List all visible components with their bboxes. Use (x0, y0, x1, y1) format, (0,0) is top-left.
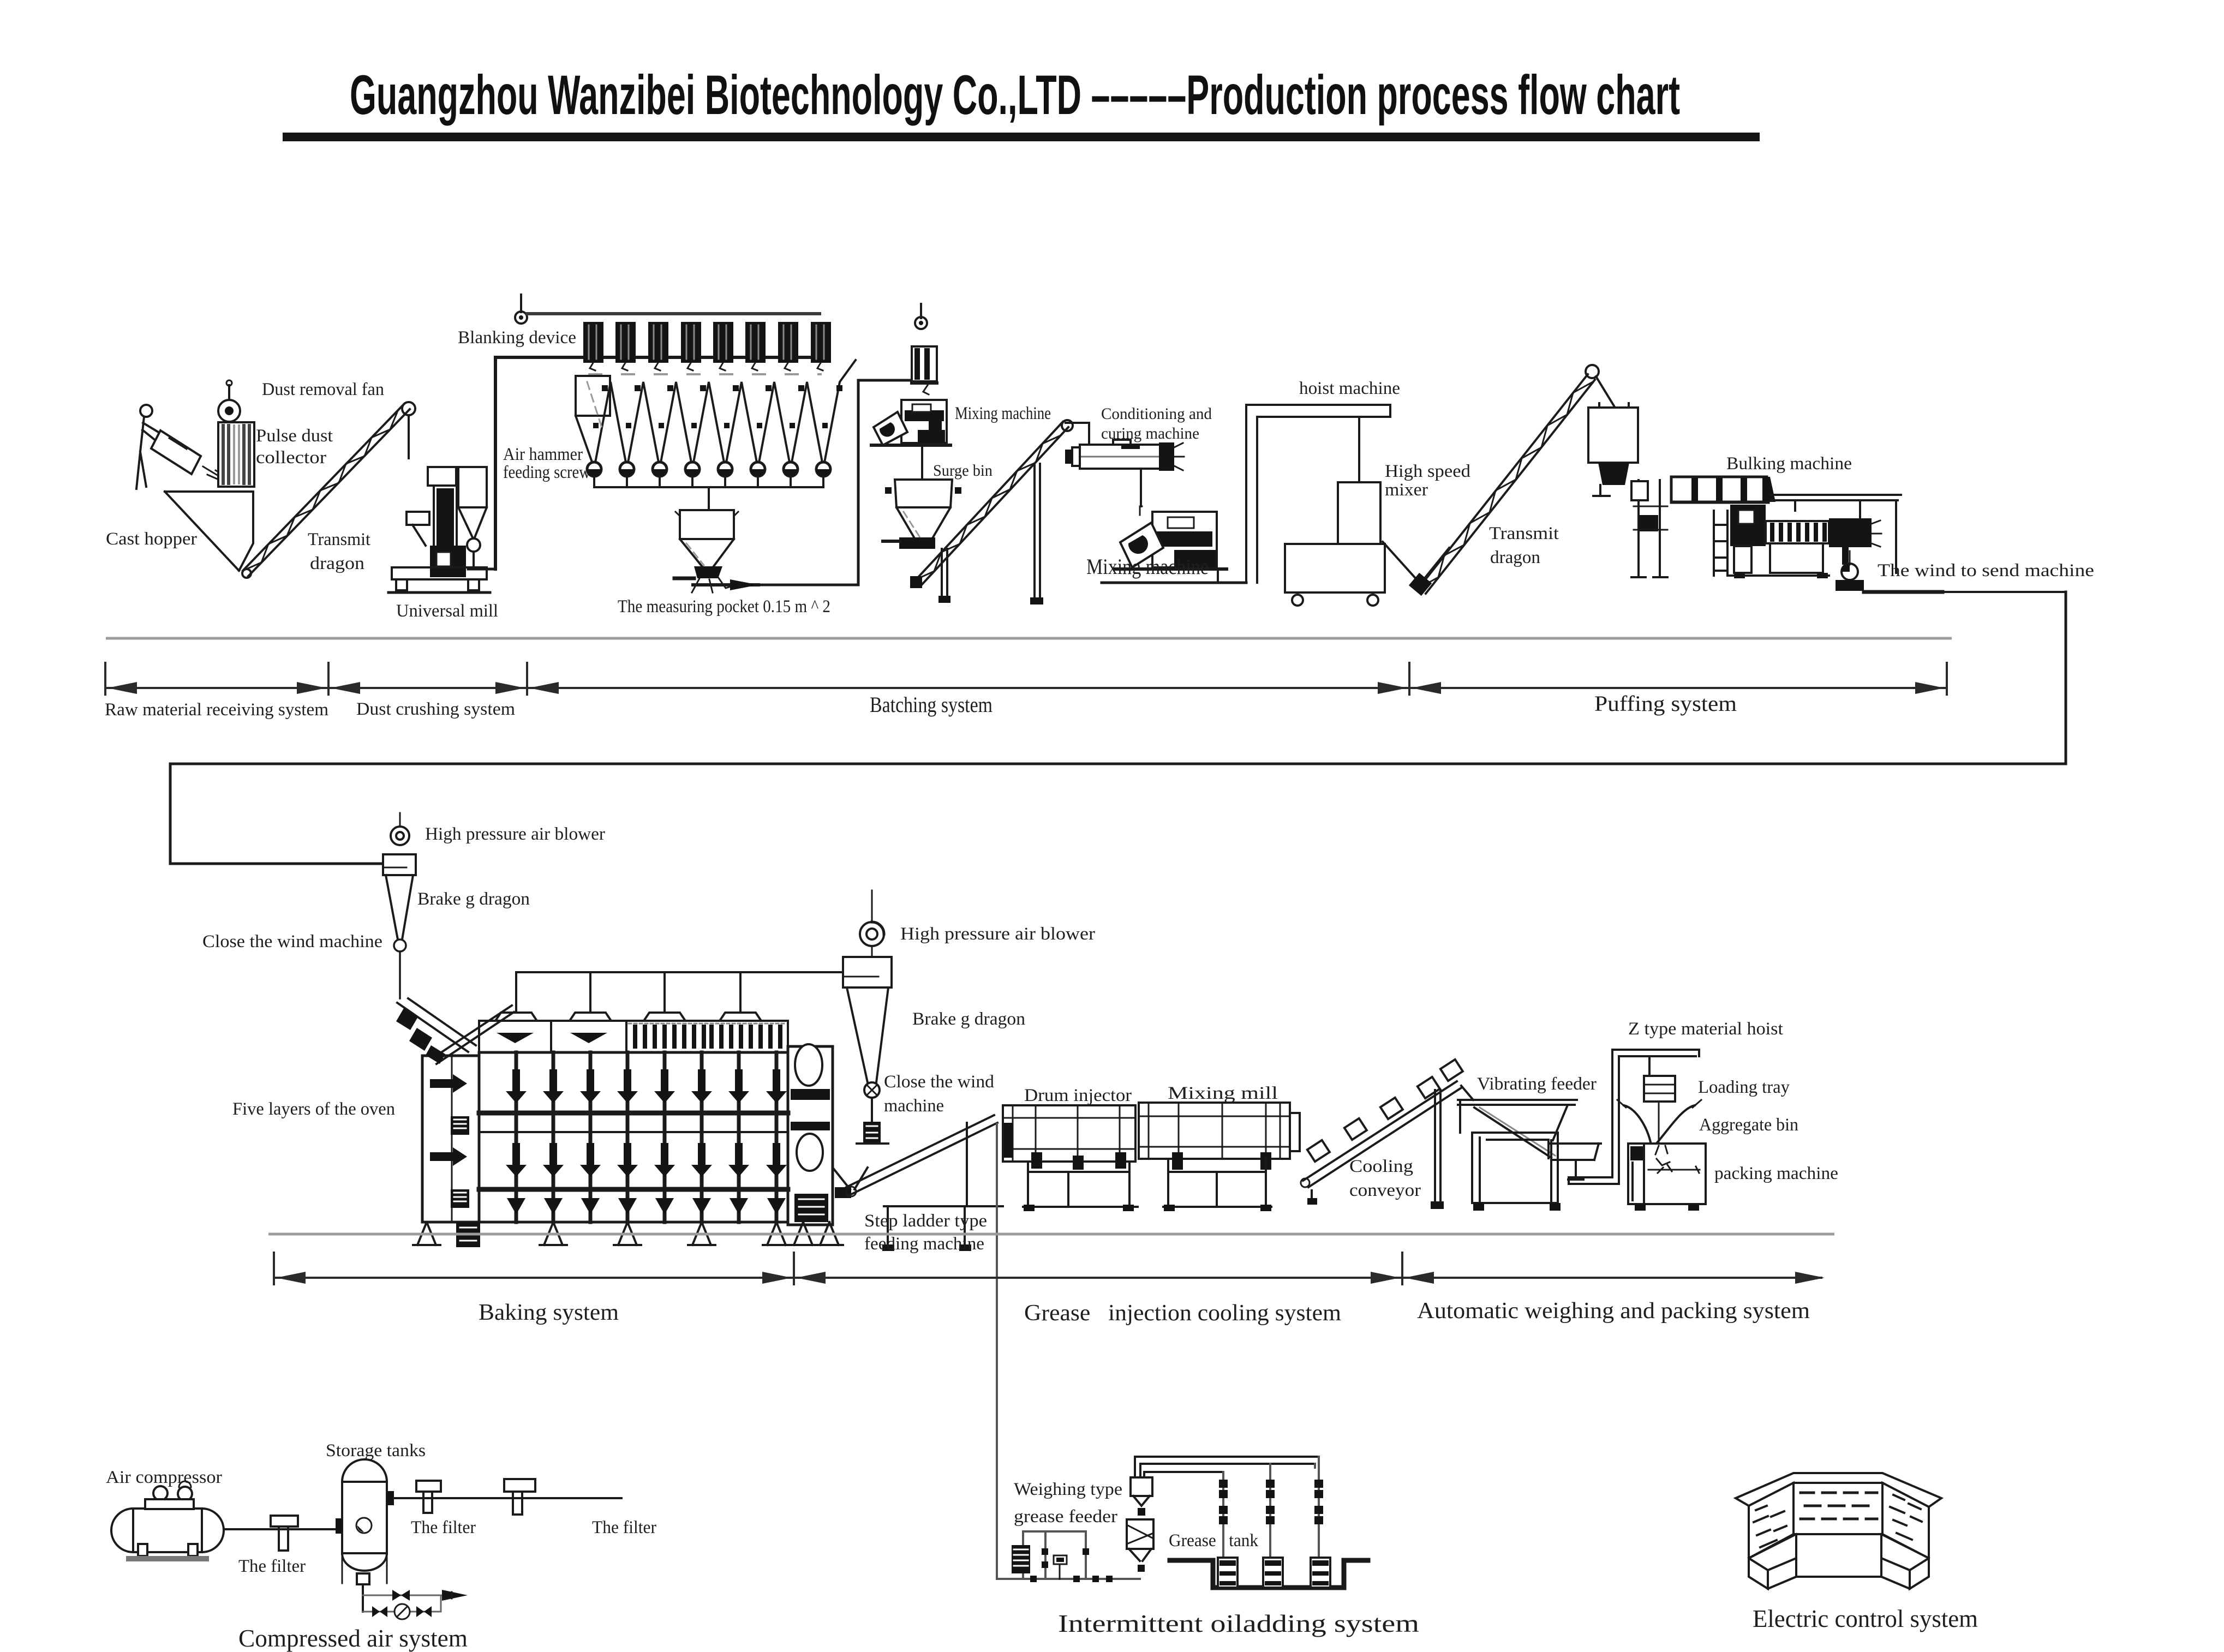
svg-text:Surge bin: Surge bin (933, 462, 993, 480)
svg-text:dragon: dragon (1490, 548, 1540, 567)
svg-text:dragon: dragon (310, 554, 364, 573)
svg-text:Close the wind: Close the wind (884, 1072, 995, 1092)
svg-text:High speed: High speed (1385, 462, 1471, 481)
svg-text:Grease injection cooling syst: Grease injection cooling system (1024, 1301, 1341, 1326)
svg-text:Air compressor: Air compressor (106, 1468, 222, 1487)
svg-text:grease feeder: grease feeder (1014, 1507, 1117, 1527)
svg-text:feeding screw: feeding screw (503, 463, 590, 482)
svg-text:Mixing machine: Mixing machine (1086, 554, 1209, 579)
svg-text:Aggregate bin: Aggregate bin (1699, 1115, 1798, 1135)
svg-text:The filter: The filter (411, 1518, 476, 1537)
svg-text:Blanking device: Blanking device (458, 328, 576, 348)
svg-text:Guangzhou Wanzibei Biotechnolo: Guangzhou Wanzibei Biotechnology Co.,LTD… (350, 64, 1680, 126)
svg-text:Cooling: Cooling (1349, 1157, 1413, 1176)
svg-text:Vibrating feeder: Vibrating feeder (1477, 1074, 1597, 1094)
svg-text:Step ladder type: Step ladder type (864, 1211, 987, 1231)
svg-text:Storage tanks: Storage tanks (326, 1441, 426, 1461)
svg-text:mixer: mixer (1385, 480, 1428, 500)
svg-text:machine: machine (884, 1096, 944, 1116)
svg-text:The measuring pocket 0.15 m ^: The measuring pocket 0.15 m ^ 2 (618, 597, 830, 616)
svg-text:Raw material receiving system: Raw material receiving system (105, 700, 328, 720)
svg-text:curing machine: curing machine (1101, 424, 1199, 442)
svg-text:Electric control system: Electric control system (1753, 1605, 1978, 1632)
svg-text:The filter: The filter (592, 1518, 656, 1537)
svg-text:Mixing mill: Mixing mill (1168, 1084, 1278, 1103)
svg-text:Transmit: Transmit (1489, 524, 1559, 543)
svg-text:Five layers of the oven: Five layers of the oven (232, 1099, 395, 1119)
svg-text:collector: collector (256, 448, 326, 468)
svg-text:conveyor: conveyor (1349, 1181, 1421, 1200)
svg-text:feeding machine: feeding machine (864, 1234, 984, 1254)
svg-text:Pulse dust: Pulse dust (256, 426, 333, 446)
svg-text:Air hammer: Air hammer (503, 445, 583, 464)
svg-text:Batching system: Batching system (870, 692, 993, 717)
svg-text:Bulking machine: Bulking machine (1726, 454, 1852, 474)
svg-text:Universal mill: Universal mill (396, 601, 498, 621)
svg-text:Intermittent oiladding system: Intermittent oiladding system (1058, 1609, 1419, 1637)
svg-text:Drum injector: Drum injector (1024, 1086, 1132, 1105)
svg-text:Baking system: Baking system (479, 1300, 619, 1325)
svg-text:High pressure air blower: High pressure air blower (900, 924, 1095, 944)
svg-text:Brake g dragon: Brake g dragon (912, 1009, 1025, 1029)
svg-text:Close the wind machine: Close the wind machine (202, 932, 382, 951)
svg-text:Compressed air system: Compressed air system (238, 1624, 468, 1652)
svg-text:Cast hopper: Cast hopper (106, 529, 197, 549)
svg-text:Dust removal fan: Dust removal fan (262, 380, 384, 399)
svg-text:Automatic weighing and packing: Automatic weighing and packing system (1417, 1298, 1810, 1324)
svg-text:Weighing type: Weighing type (1014, 1480, 1122, 1499)
svg-text:hoist machine: hoist machine (1299, 379, 1400, 398)
svg-text:Dust crushing system: Dust crushing system (356, 699, 515, 719)
svg-text:Brake g dragon: Brake g dragon (417, 889, 530, 909)
svg-text:Grease tank: Grease tank (1169, 1531, 1258, 1551)
svg-text:Mixing machine: Mixing machine (955, 404, 1051, 423)
svg-text:The wind to send machine: The wind to send machine (1878, 561, 2094, 580)
svg-text:packing machine: packing machine (1714, 1164, 1838, 1183)
svg-text:Conditioning and: Conditioning and (1101, 405, 1212, 423)
svg-text:The filter: The filter (238, 1557, 306, 1576)
svg-text:Z type material hoist: Z type material hoist (1628, 1019, 1783, 1039)
svg-text:Loading tray: Loading tray (1698, 1078, 1790, 1097)
svg-text:High pressure air blower: High pressure air blower (425, 824, 605, 844)
svg-text:Puffing system: Puffing system (1594, 691, 1737, 716)
svg-text:Transmit: Transmit (308, 530, 370, 549)
